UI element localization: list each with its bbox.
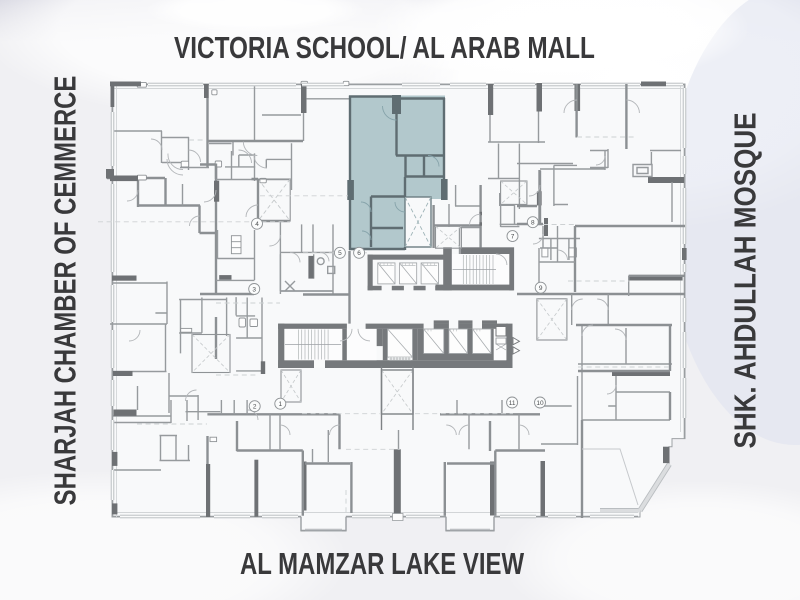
svg-text:8: 8	[531, 220, 535, 227]
svg-text:6: 6	[357, 250, 361, 257]
svg-text:11: 11	[509, 400, 516, 407]
svg-text:4: 4	[255, 221, 259, 228]
svg-text:1: 1	[278, 401, 282, 408]
svg-text:2: 2	[253, 404, 257, 411]
svg-text:7: 7	[511, 233, 515, 240]
svg-text:9: 9	[539, 285, 543, 292]
svg-text:5: 5	[338, 250, 342, 257]
svg-text:3: 3	[252, 286, 256, 293]
svg-text:10: 10	[536, 400, 544, 407]
